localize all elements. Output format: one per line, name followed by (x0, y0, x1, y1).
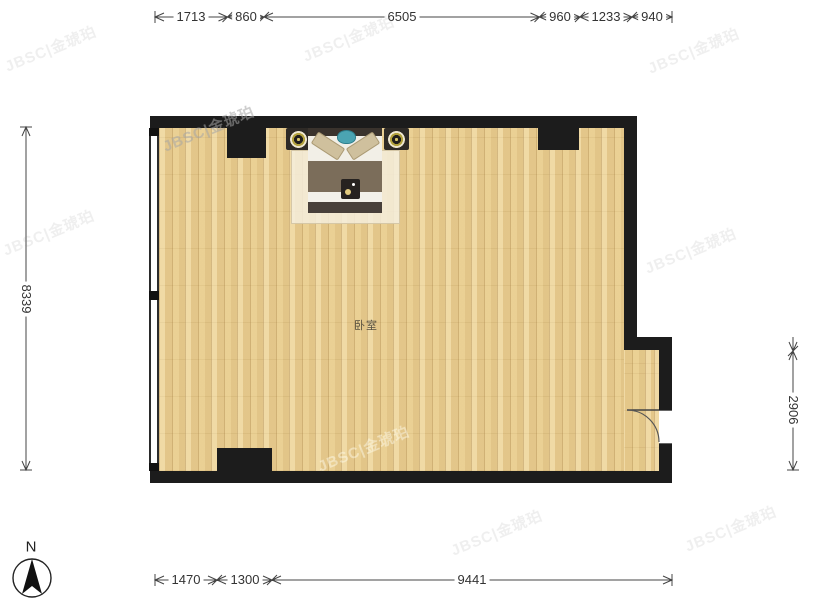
window-mullion-top (149, 128, 159, 136)
dim-top-2: 860 (232, 10, 260, 24)
wall-right-upper (624, 116, 637, 350)
dim-top-4: 960 (546, 10, 574, 24)
dim-left-1: 8339 (19, 282, 33, 317)
dim-top-6: 940 (638, 10, 666, 24)
wall-step (624, 337, 672, 350)
floor-plan-page: 1713 860 6505 960 1233 940 1470 1300 944… (0, 0, 816, 603)
dim-bottom-3: 9441 (455, 573, 490, 587)
door-swing-icon (600, 390, 700, 460)
lamp-right-icon (388, 131, 405, 148)
bed-tray-box (341, 179, 360, 199)
pillar-top-right (538, 128, 579, 150)
dim-right-2: 2906 (786, 393, 800, 428)
dim-top-5: 1233 (589, 10, 624, 24)
window-mullion-middle (149, 291, 159, 300)
dim-top-1: 1713 (174, 10, 209, 24)
room-label-bedroom: 卧室 (354, 317, 378, 333)
bed-teal-cushion (337, 130, 356, 144)
wall-bottom (150, 471, 672, 483)
pillar-top-left (227, 128, 266, 158)
bed-footboard (308, 202, 382, 213)
dim-bottom-1: 1470 (169, 573, 204, 587)
dim-bottom-2: 1300 (228, 573, 263, 587)
compass-north-label: N (26, 539, 37, 556)
compass-icon (10, 556, 56, 602)
outside-area (637, 110, 816, 337)
tray-dot-gold (345, 189, 351, 195)
tray-dot-white (352, 183, 355, 186)
lamp-left-icon (290, 131, 307, 148)
dim-top-3: 6505 (385, 10, 420, 24)
wall-top (150, 116, 637, 128)
pillar-bottom (217, 448, 272, 471)
window-mullion-bottom (149, 463, 159, 471)
